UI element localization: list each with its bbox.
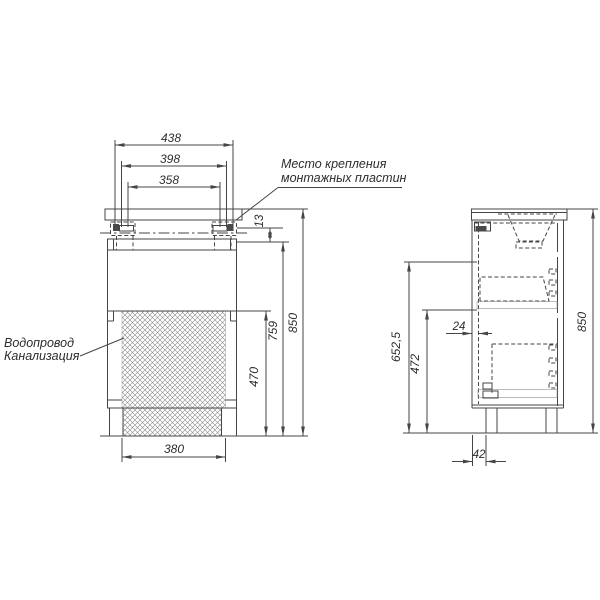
plumbing-label-line2: Канализация: [4, 349, 80, 363]
side-view: [403, 209, 598, 433]
lower-brackets: [483, 383, 498, 398]
sink-drain: [516, 242, 542, 248]
dim-24: 24: [452, 321, 466, 333]
side-dimension-lines: [409, 209, 593, 462]
dim-398: 398: [160, 152, 180, 166]
dim-850-front: 850: [286, 313, 300, 333]
plumbing-label-leader: [80, 338, 124, 356]
dim-13: 13: [254, 214, 266, 227]
plumbing-label-line1: Водопровод: [4, 336, 74, 350]
cabinet-body-side: [472, 220, 564, 408]
dim-380: 380: [164, 442, 184, 456]
hidden-lines-side: [474, 214, 557, 404]
technical-drawing: 438 398 358 13 470 759 850 380 Место кре…: [0, 0, 600, 600]
drawing-canvas: 438 398 358 13 470 759 850 380 Место кре…: [0, 0, 600, 600]
mounting-label-line2: монтажных пластин: [281, 171, 407, 185]
countertop-front: [105, 209, 242, 220]
shelf-section-upper: [477, 302, 557, 309]
dim-850-side: 850: [575, 312, 589, 332]
dim-358: 358: [159, 173, 179, 187]
dim-42: 42: [473, 449, 486, 461]
dim-652-5: 652,5: [389, 332, 403, 362]
plumbing-hatch-area: [122, 311, 226, 436]
drawer-box: [480, 277, 549, 301]
side-extension-lines: [404, 209, 598, 466]
mounting-plates: [111, 222, 237, 250]
dim-759: 759: [266, 321, 280, 341]
dim-438: 438: [161, 131, 181, 145]
legs-side: [486, 408, 557, 433]
dim-470: 470: [247, 367, 261, 387]
dim-472: 472: [408, 354, 422, 374]
mounting-label-line1: Место крепления: [281, 157, 387, 171]
